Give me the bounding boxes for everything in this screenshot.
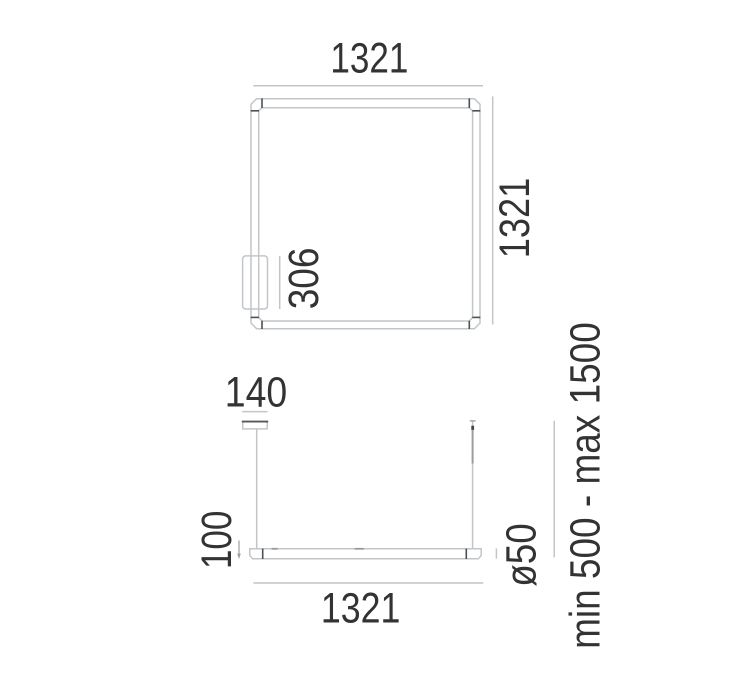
svg-text:140: 140: [225, 369, 287, 417]
svg-text:100: 100: [193, 511, 241, 569]
svg-text:1321: 1321: [330, 34, 408, 82]
svg-text:ø50: ø50: [498, 523, 546, 587]
svg-text:1321: 1321: [321, 584, 401, 632]
svg-text:1321: 1321: [491, 178, 539, 258]
svg-text:min 500 - max 1500: min 500 - max 1500: [562, 322, 610, 649]
svg-text:306: 306: [280, 247, 328, 309]
